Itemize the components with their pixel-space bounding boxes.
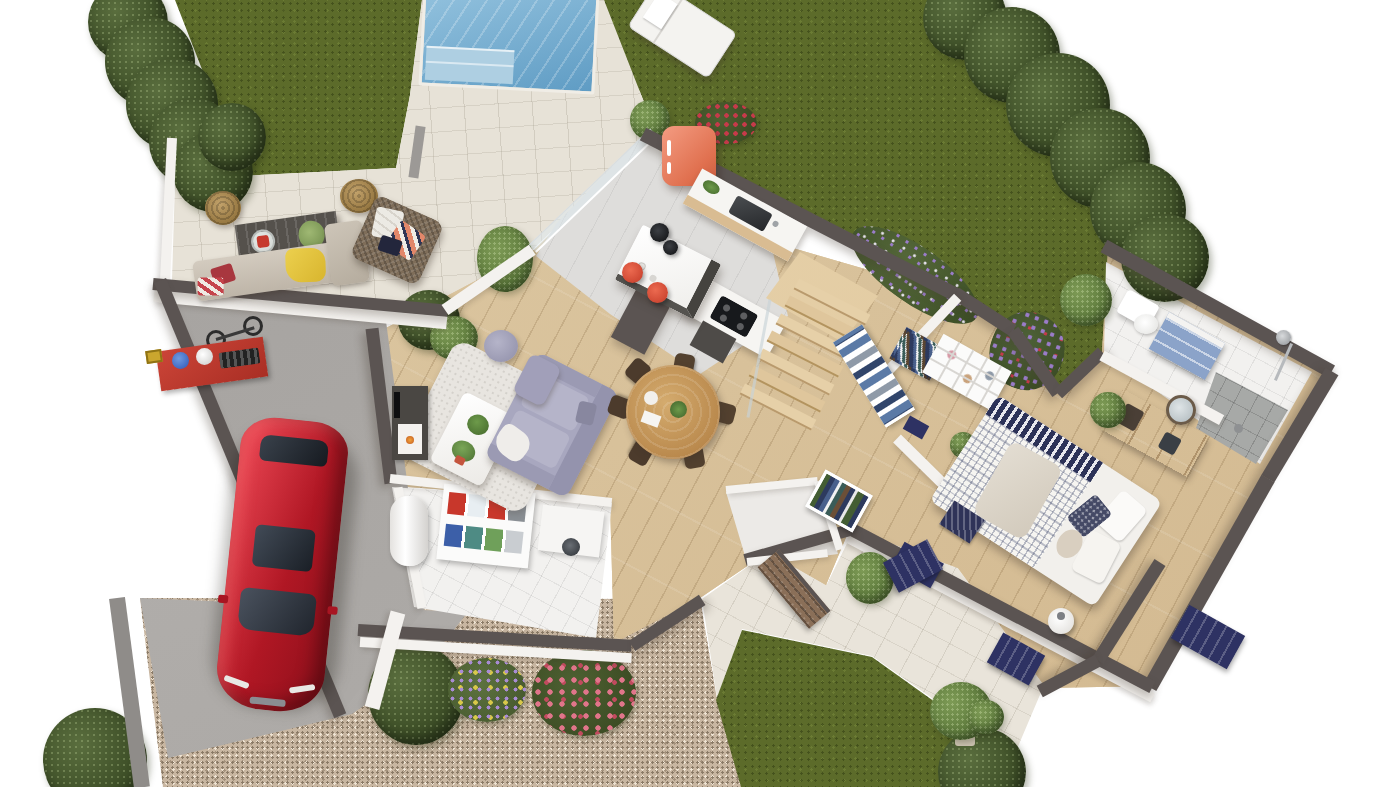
- car-mirror-left: [218, 595, 229, 604]
- car-windshield: [237, 587, 317, 637]
- crate-yellow: [145, 349, 163, 364]
- table-centerpiece: [670, 401, 687, 418]
- pendant-lamp-2: [663, 240, 678, 255]
- workbench-tools: [219, 347, 261, 368]
- counter-herbs: [700, 178, 722, 197]
- living-pouf: [484, 330, 518, 362]
- palm-garden: [1060, 274, 1112, 326]
- bucket-white: [196, 348, 213, 365]
- sideboard-decor-2: [1158, 431, 1182, 455]
- dining-table: [626, 365, 720, 459]
- flowerbed-lavender: [448, 658, 526, 722]
- bedside-lamp: [1057, 612, 1065, 620]
- bar-stool-2: [647, 282, 668, 303]
- sofa-cushion-striped: [198, 278, 224, 296]
- tv-screen: [394, 392, 400, 418]
- fridge-handle-1: [667, 140, 671, 156]
- fridge-handle-2: [667, 162, 671, 174]
- shower-drain: [1234, 424, 1243, 433]
- storage-boxes-row2: [444, 524, 524, 554]
- hedge-west-6: [198, 103, 266, 171]
- water-heater: [390, 496, 428, 566]
- bar-stool-1: [622, 262, 643, 283]
- floor-plan-render: [0, 0, 1400, 787]
- fireplace-flame: [406, 436, 414, 444]
- pendant-lamp-1: [650, 223, 669, 242]
- rattan-pouf-1: [205, 191, 241, 225]
- bedroom-plant: [1090, 392, 1126, 428]
- table-plant-1: [464, 411, 493, 439]
- washer-door: [562, 538, 580, 556]
- tv-console: [392, 386, 428, 460]
- round-mirror: [1166, 395, 1196, 425]
- car-sunroof: [252, 524, 316, 572]
- shower-column: [1276, 330, 1291, 345]
- table-plate: [644, 391, 658, 405]
- faucet: [771, 220, 779, 228]
- monstera-leaf: [968, 700, 1004, 734]
- sofa-throw-yellow: [285, 247, 326, 282]
- bucket-blue: [172, 352, 189, 369]
- swimming-pool: [419, 0, 600, 95]
- toilet-bowl: [1134, 314, 1158, 334]
- scene-title-anchor: [0, 0, 1, 1]
- car-mirror-right: [327, 606, 338, 615]
- table-paper: [640, 410, 661, 427]
- flowerbed-roses: [532, 650, 636, 736]
- red-tray-snacks: [256, 235, 270, 249]
